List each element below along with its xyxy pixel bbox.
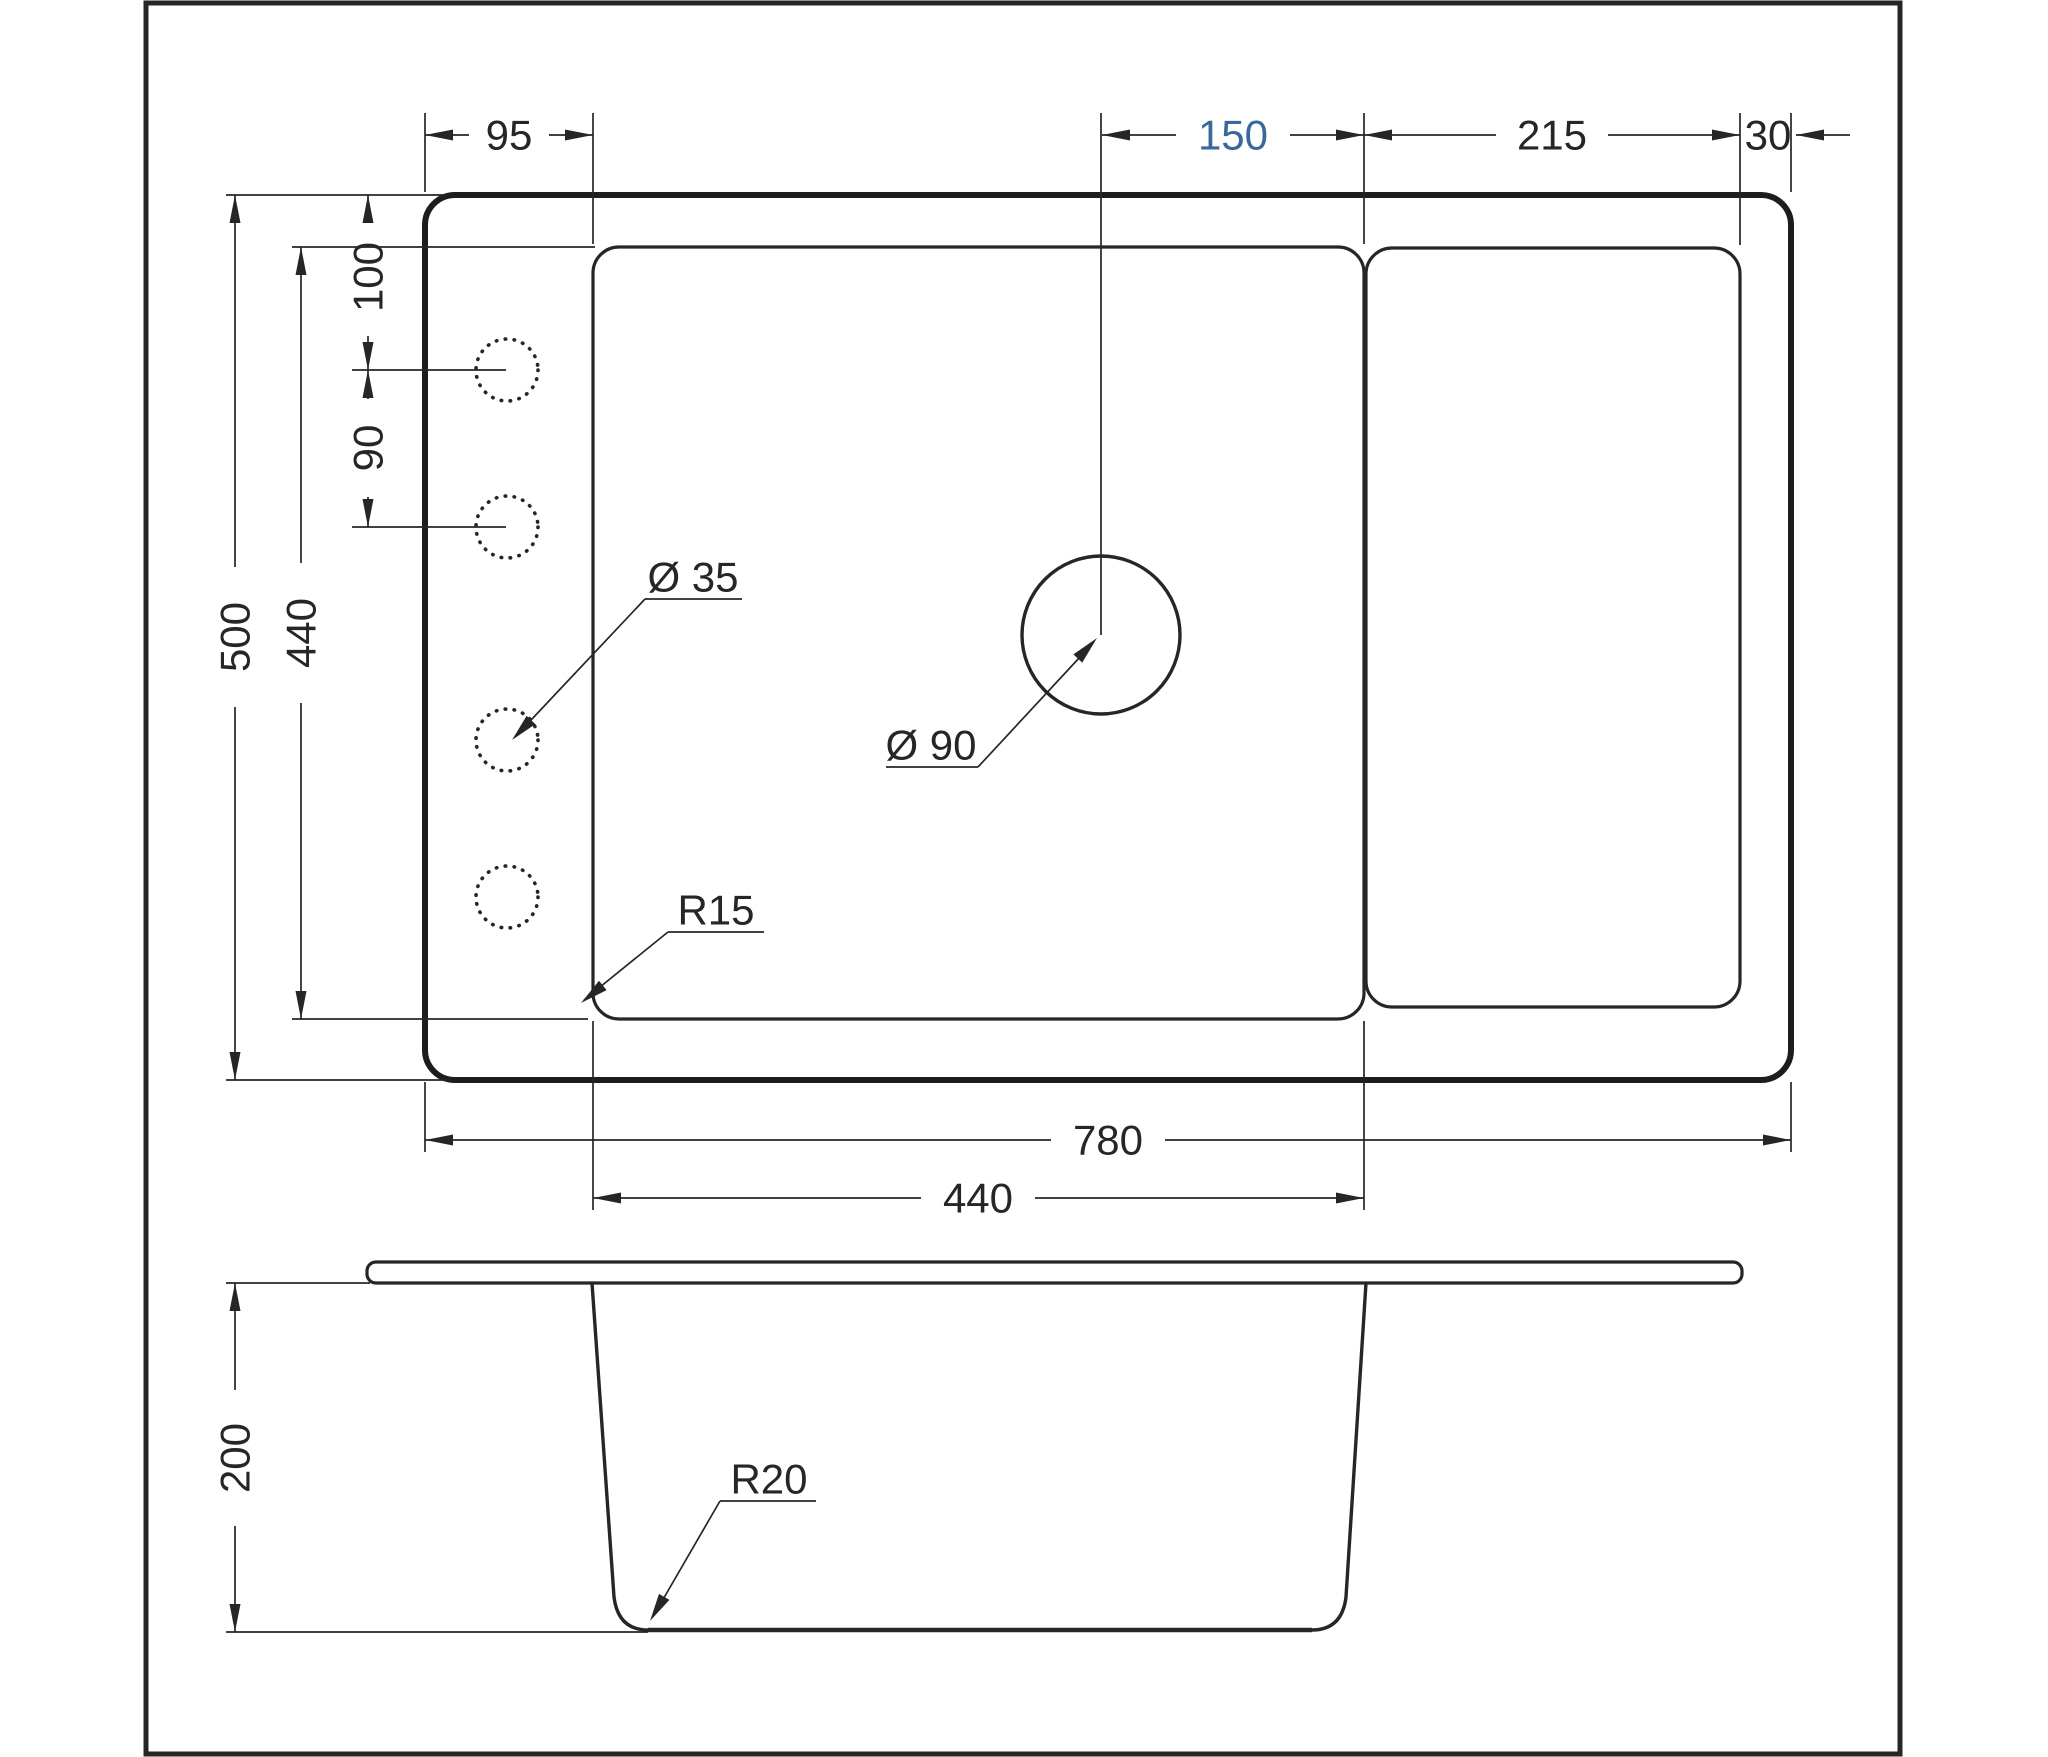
dim-drainboard-width: 215	[1364, 112, 1740, 159]
arrow-left-icon	[593, 1193, 621, 1204]
section-rim	[367, 1262, 1742, 1283]
dim-hole-spacing: 90	[345, 370, 392, 527]
arrow-left-icon	[1102, 130, 1130, 141]
dim-bowl-depth: 440	[278, 247, 325, 1019]
sink-technical-drawing: 95 150 215 30	[0, 0, 2048, 1757]
arrow-up-icon	[296, 247, 307, 275]
dim-440-bottom-label: 440	[943, 1175, 1013, 1222]
arrow-down-icon	[230, 1604, 241, 1632]
dim-100-label: 100	[345, 242, 392, 312]
arrow-left-icon	[425, 130, 453, 141]
arrow-right-icon	[1763, 1135, 1791, 1146]
dim-440-left-label: 440	[278, 598, 325, 668]
faucet-hole-4	[476, 866, 538, 928]
arrow-right-icon	[1336, 1193, 1364, 1204]
section-view: 200 R20	[212, 1262, 1743, 1632]
leader-arrow-icon	[1073, 638, 1097, 663]
dim-30-label: 30	[1745, 112, 1792, 159]
extension-lines	[226, 113, 1791, 1210]
section-bowl-profile	[592, 1283, 1366, 1630]
dia-35-label: Ø 35	[647, 554, 738, 601]
dim-overall-depth: 500	[212, 195, 259, 1080]
arrow-up-icon	[230, 1283, 241, 1311]
plan-view: 95 150 215 30	[212, 112, 1851, 1222]
arrow-up-icon	[363, 195, 374, 223]
dim-200-label: 200	[212, 1423, 259, 1493]
dim-215-label: 215	[1517, 112, 1587, 159]
dim-150-label: 150	[1198, 112, 1268, 159]
dia-90-label: Ø 90	[885, 722, 976, 769]
dim-780-label: 780	[1073, 1117, 1143, 1164]
leader-drain-diameter: Ø 90	[885, 638, 1097, 769]
sheet-border	[146, 3, 1900, 1754]
arrow-down-icon	[363, 342, 374, 370]
leader-line	[516, 599, 645, 736]
dim-bowl-width: 440	[593, 1175, 1364, 1222]
dim-rim-to-bowl: 95	[425, 112, 593, 159]
arrow-up-icon	[230, 195, 241, 223]
r15-label: R15	[677, 887, 754, 934]
arrow-up-icon	[363, 370, 374, 398]
leader-bottom-radius: R20	[650, 1456, 816, 1622]
drawing-sheet: 95 150 215 30	[0, 0, 2048, 1757]
arrow-down-icon	[230, 1052, 241, 1080]
leader-arrow-icon	[650, 1594, 669, 1621]
leader-line	[978, 643, 1093, 767]
dim-95-label: 95	[486, 112, 533, 159]
leader-bowl-corner-radius: R15	[581, 887, 764, 1004]
arrow-down-icon	[296, 991, 307, 1019]
arrow-left-icon	[1364, 130, 1392, 141]
arrow-left-icon	[425, 1135, 453, 1146]
arrow-right-icon	[565, 130, 593, 141]
dim-bowl-height: 200	[212, 1283, 259, 1632]
leader-faucet-hole-diameter: Ø 35	[512, 554, 742, 741]
dim-overall-width: 780	[425, 1117, 1791, 1164]
arrow-right-icon	[1712, 130, 1740, 141]
arrow-down-icon	[363, 499, 374, 527]
dim-top-to-hole1: 100	[345, 195, 392, 370]
dim-500-label: 500	[212, 602, 259, 672]
dim-right-margin: 30	[1745, 112, 1850, 159]
dim-drain-to-bowl-right: 150	[1102, 112, 1364, 159]
arrow-left-icon	[1796, 130, 1824, 141]
arrow-right-icon	[1336, 130, 1364, 141]
sink-outer-outline	[425, 195, 1791, 1080]
dim-90-label: 90	[345, 425, 392, 472]
r20-label: R20	[730, 1456, 807, 1503]
drainboard-outline	[1366, 248, 1740, 1007]
